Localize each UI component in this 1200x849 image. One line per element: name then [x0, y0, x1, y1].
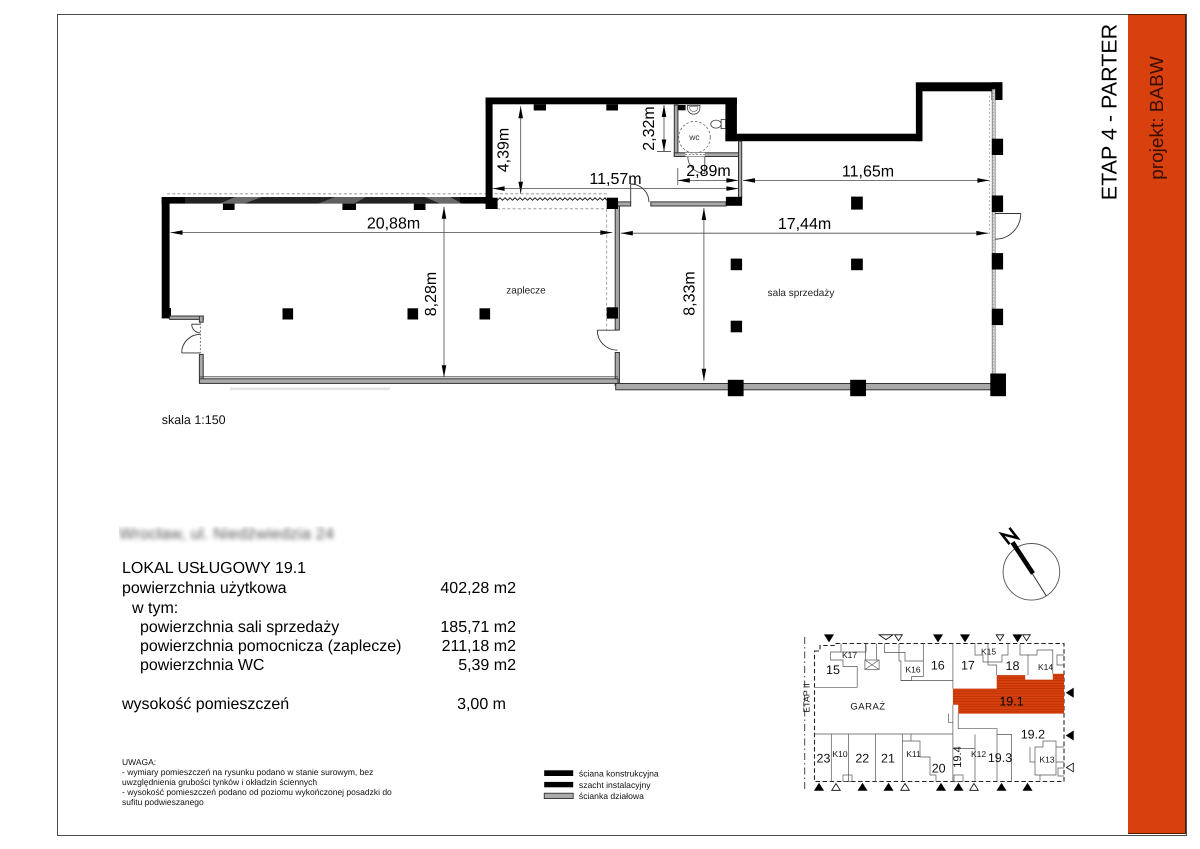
svg-text:sala sprzedaży: sala sprzedaży	[768, 288, 835, 299]
svg-text:19.1: 19.1	[999, 695, 1023, 709]
svg-text:ETAP II: ETAP II	[802, 683, 812, 713]
svg-text:16: 16	[931, 659, 945, 673]
svg-text:zaplecze: zaplecze	[506, 286, 546, 297]
svg-text:wc: wc	[688, 132, 700, 142]
svg-text:4,39m: 4,39m	[496, 128, 513, 172]
svg-text:K17: K17	[842, 650, 857, 660]
svg-text:K15: K15	[981, 647, 996, 657]
svg-text:2,32m: 2,32m	[641, 106, 658, 150]
svg-text:K13: K13	[1039, 755, 1054, 765]
svg-text:23: 23	[817, 752, 831, 766]
svg-text:19.2: 19.2	[1021, 728, 1045, 742]
svg-text:K14: K14	[1038, 662, 1053, 672]
svg-text:GARAŻ: GARAŻ	[850, 701, 885, 713]
svg-text:ścianka działowa: ścianka działowa	[579, 791, 644, 801]
svg-text:K10: K10	[832, 749, 847, 759]
svg-text:20: 20	[932, 762, 946, 776]
svg-text:19.3: 19.3	[988, 751, 1012, 765]
svg-text:22: 22	[855, 752, 869, 766]
svg-text:K12: K12	[971, 749, 986, 759]
svg-text:21: 21	[881, 752, 895, 766]
svg-text:2,89m: 2,89m	[686, 163, 730, 180]
svg-text:15: 15	[826, 663, 840, 677]
svg-text:K11: K11	[906, 749, 921, 759]
svg-text:8,33m: 8,33m	[682, 271, 699, 315]
svg-text:18: 18	[1006, 659, 1020, 673]
svg-text:11,65m: 11,65m	[842, 164, 894, 181]
svg-text:ściana konstrukcyjna: ściana konstrukcyjna	[579, 768, 659, 778]
svg-text:19.4: 19.4	[952, 746, 964, 767]
svg-text:20,88m: 20,88m	[367, 215, 420, 232]
svg-text:8,28m: 8,28m	[423, 272, 440, 316]
svg-text:szacht instalacyjny: szacht instalacyjny	[579, 780, 651, 790]
svg-text:K16: K16	[905, 665, 920, 675]
svg-text:skala 1:150: skala 1:150	[162, 413, 226, 427]
svg-text:17: 17	[961, 659, 975, 673]
svg-text:17,44m: 17,44m	[778, 216, 831, 233]
svg-text:11,57m: 11,57m	[589, 171, 641, 188]
